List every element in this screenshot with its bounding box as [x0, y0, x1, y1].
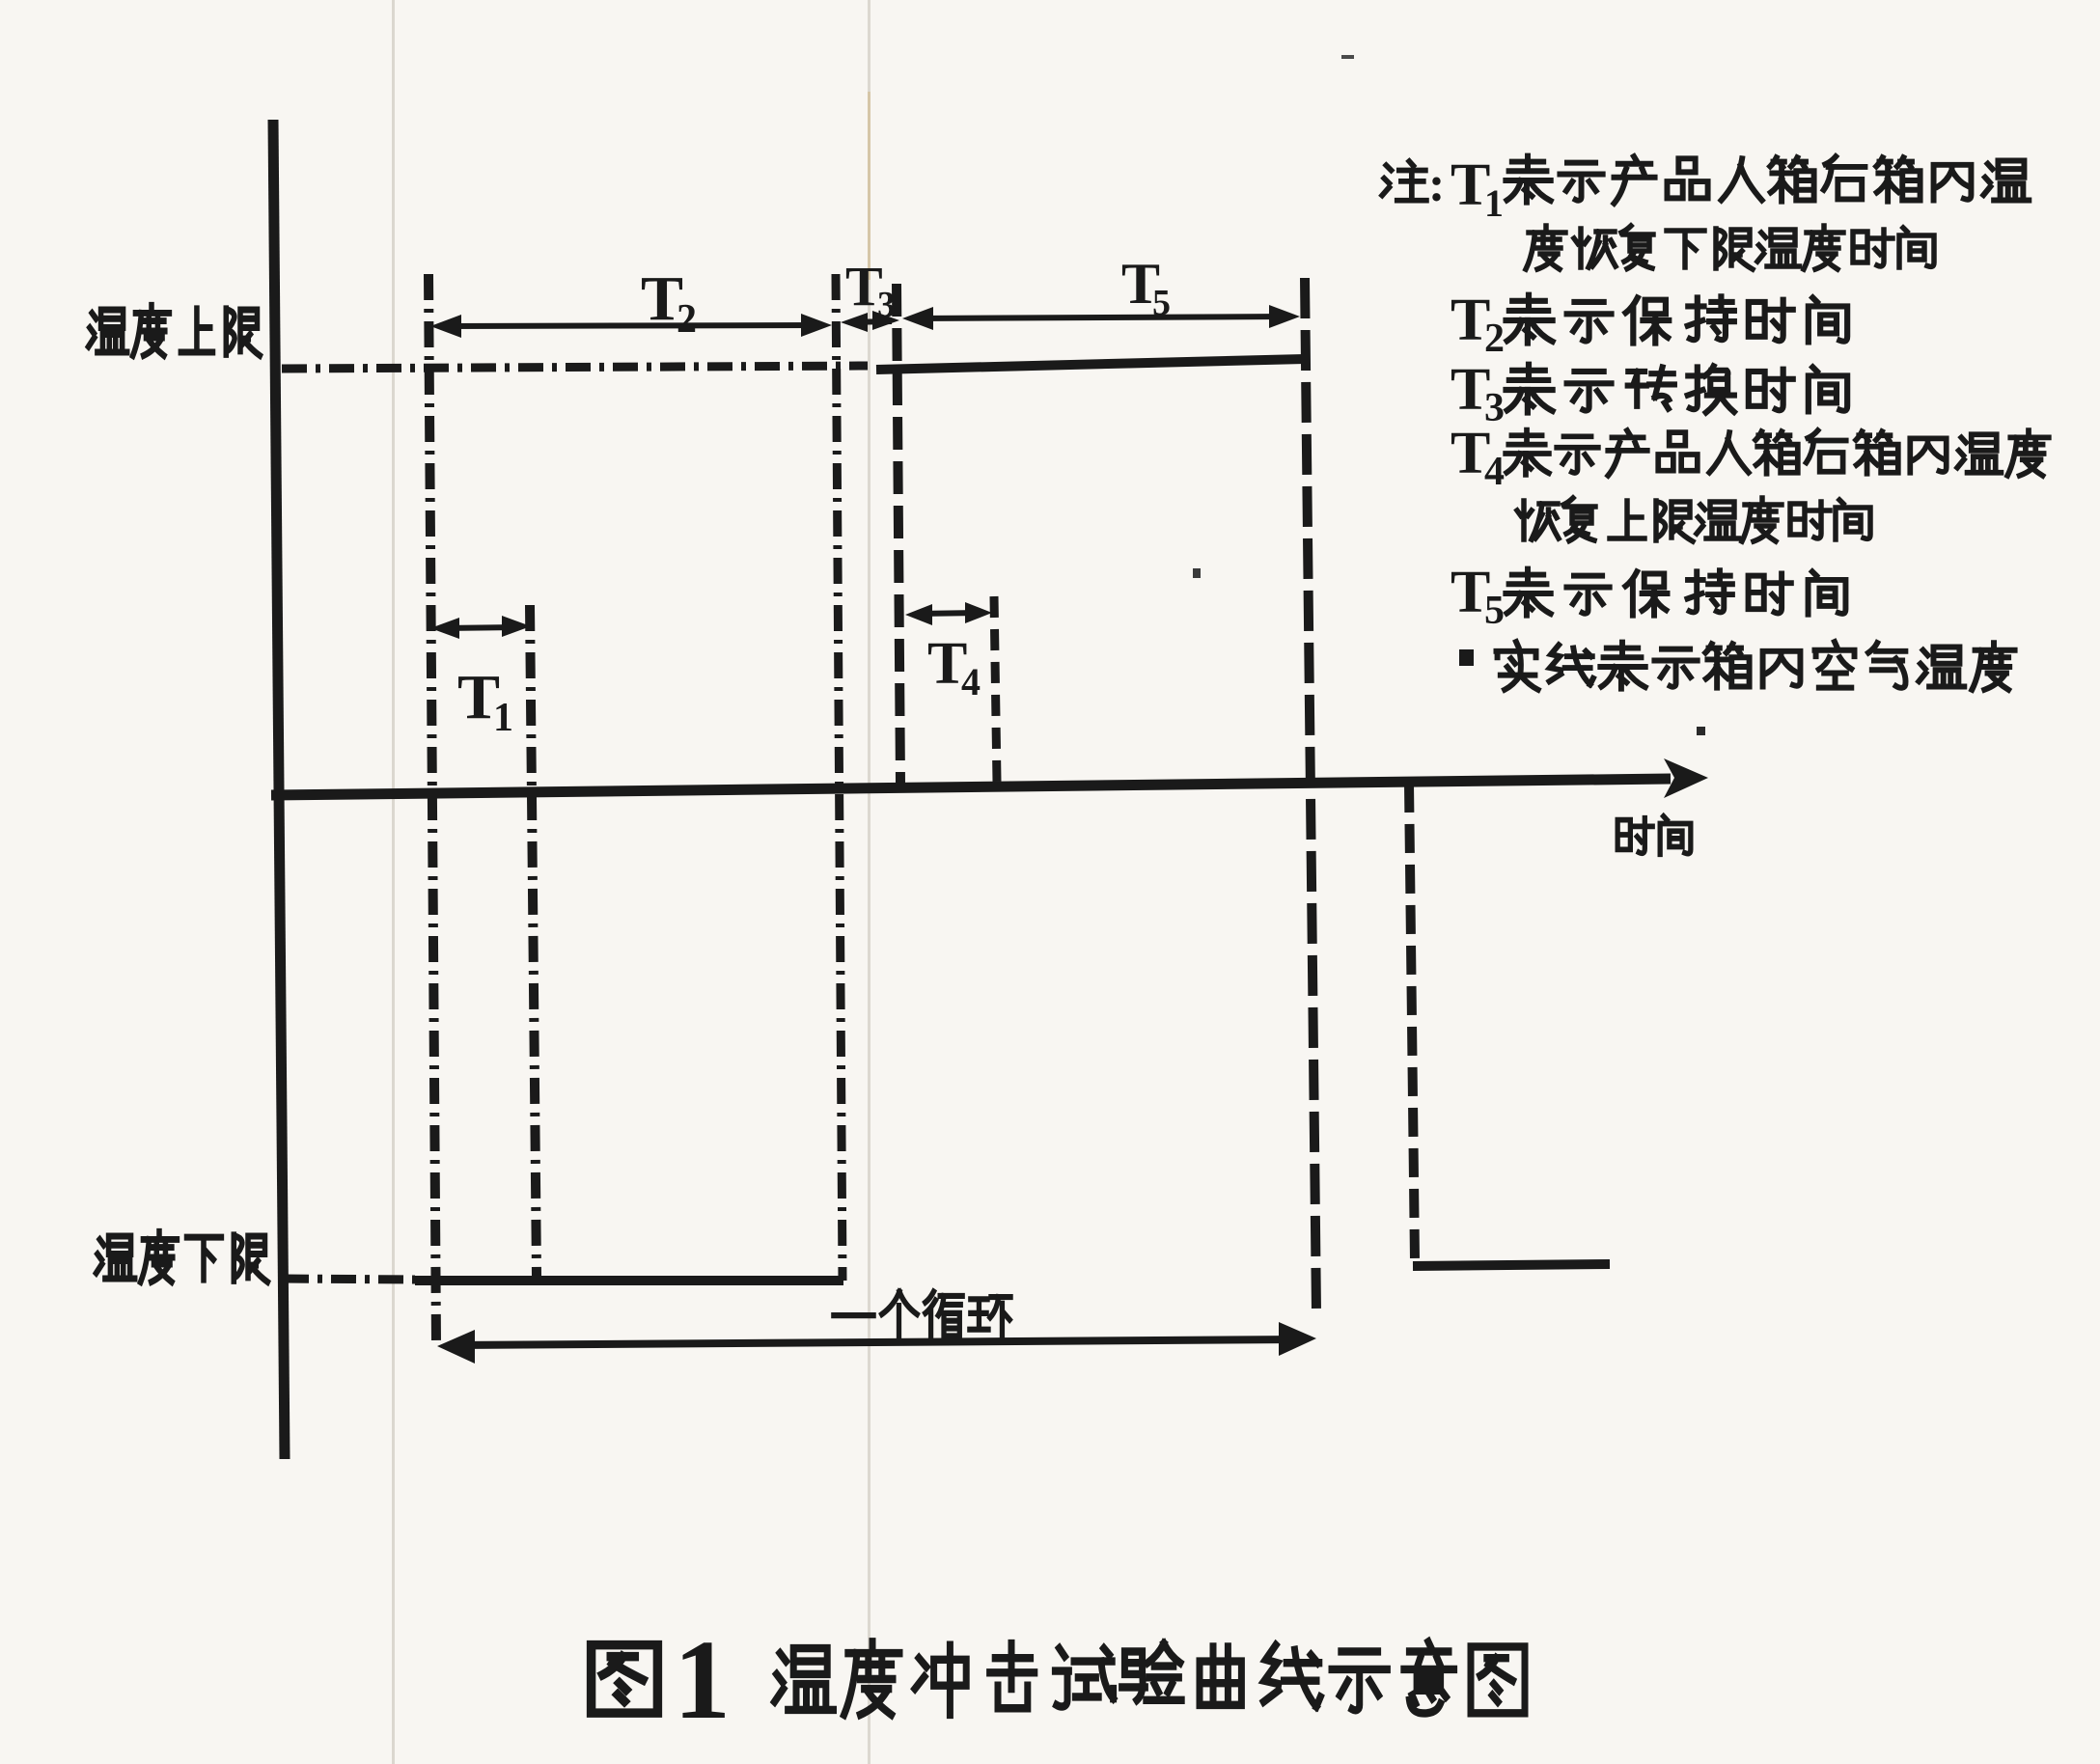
- svg-text::: :: [1428, 157, 1445, 212]
- svg-text:2: 2: [677, 297, 697, 342]
- svg-text:5: 5: [1152, 283, 1171, 323]
- svg-text:1: 1: [674, 1616, 731, 1743]
- svg-text:1: 1: [493, 696, 513, 740]
- svg-text:3: 3: [877, 285, 896, 325]
- svg-text:5: 5: [1484, 589, 1505, 633]
- svg-text:1: 1: [1484, 181, 1504, 225]
- svg-text:4: 4: [1484, 450, 1505, 494]
- svg-text:2: 2: [1484, 317, 1505, 361]
- svg-text:4: 4: [961, 660, 981, 703]
